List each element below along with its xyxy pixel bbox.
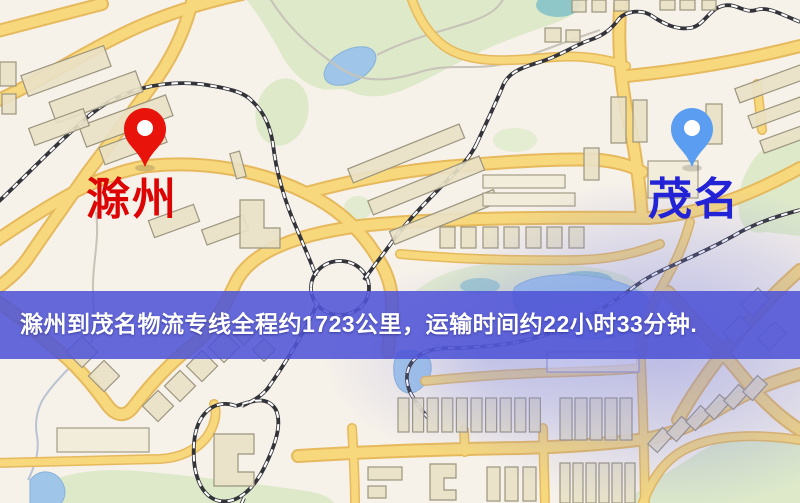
banner-glow-secondary [325, 260, 655, 460]
city-map[interactable]: 滁州到茂名物流专线全程约1723公里，运输时间约22小时33分钟. 滁州 茂名 [0, 0, 800, 503]
route-info-banner: 滁州到茂名物流专线全程约1723公里，运输时间约22小时33分钟. [0, 291, 800, 359]
destination-label: 茂名 [648, 175, 740, 224]
map-screenshot: 滁州到茂名物流专线全程约1723公里，运输时间约22小时33分钟. 滁州 茂名 [0, 0, 800, 503]
origin-label: 滁州 [86, 175, 178, 224]
banner-text: 滁州到茂名物流专线全程约1723公里，运输时间约22小时33分钟. [20, 311, 697, 337]
